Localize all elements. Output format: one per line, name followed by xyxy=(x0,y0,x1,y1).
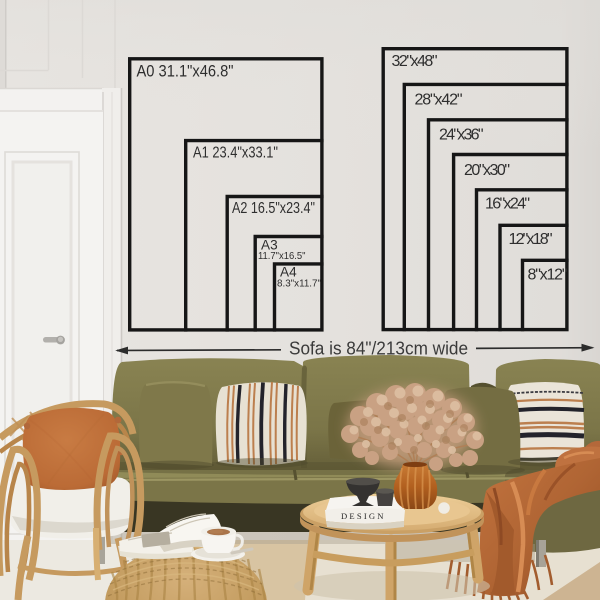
svg-text:A4: A4 xyxy=(280,264,297,279)
svg-text:28"x42": 28"x42" xyxy=(415,92,463,109)
svg-text:A2 16.5"x23.4": A2 16.5"x23.4" xyxy=(232,200,315,217)
svg-text:8"x12": 8"x12" xyxy=(528,267,568,284)
svg-text:24"x36": 24"x36" xyxy=(439,127,484,144)
svg-text:8.3"x11.7": 8.3"x11.7" xyxy=(277,279,321,290)
svg-text:A1 23.4"x33.1": A1 23.4"x33.1" xyxy=(193,145,278,162)
svg-text:16"x24": 16"x24" xyxy=(485,196,530,213)
svg-text:11.7"x16.5": 11.7"x16.5" xyxy=(258,251,306,262)
svg-text:20"x30": 20"x30" xyxy=(464,162,510,179)
svg-text:A0 31.1"x46.8": A0 31.1"x46.8" xyxy=(137,63,234,81)
svg-text:DESIGN: DESIGN xyxy=(341,511,386,521)
svg-text:12"x18": 12"x18" xyxy=(509,231,553,248)
svg-text:32"x48": 32"x48" xyxy=(392,53,438,70)
